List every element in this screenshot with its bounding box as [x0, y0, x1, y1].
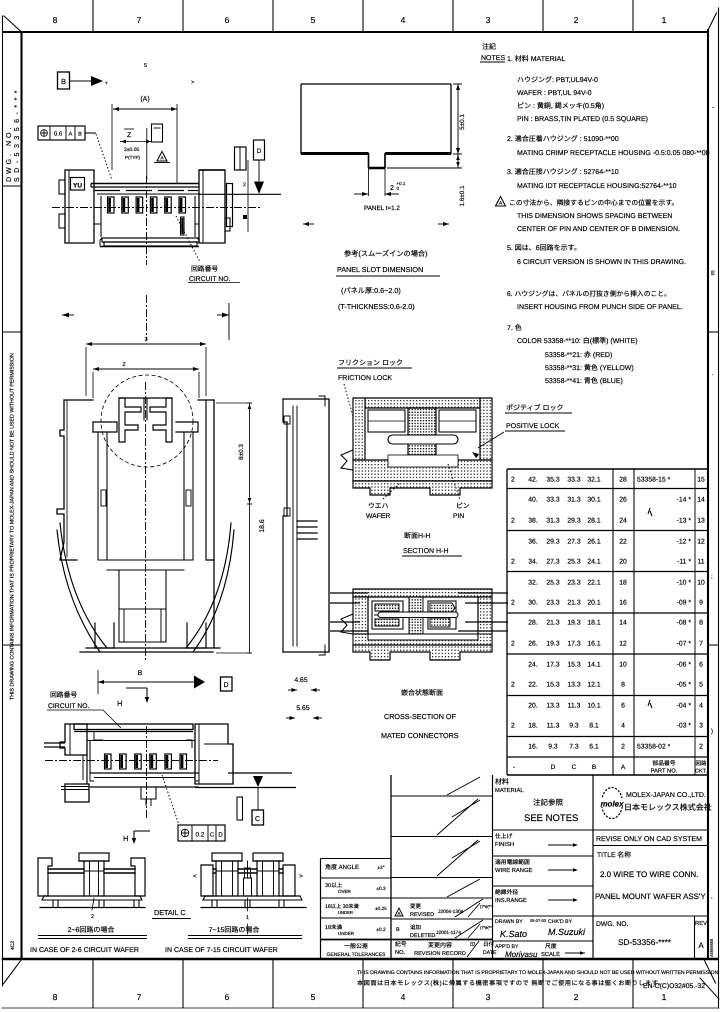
svg-text:2: 2: [511, 477, 515, 484]
svg-text:05-07-03: 05-07-03: [530, 918, 547, 923]
svg-text:25.3: 25.3: [546, 580, 559, 587]
svg-text:A: A: [69, 132, 73, 138]
svg-text:53358-**21: 赤 (RED): 53358-**21: 赤 (RED): [545, 351, 612, 359]
svg-text:31.3: 31.3: [546, 518, 559, 525]
svg-text:嵌合状態断面: 嵌合状態断面: [401, 689, 443, 697]
svg-text:2: 2: [511, 600, 515, 607]
svg-text:11.3: 11.3: [547, 723, 560, 730]
svg-text:32.1: 32.1: [587, 477, 600, 484]
svg-text:>: >: [299, 873, 303, 880]
svg-text:2: 2: [91, 914, 94, 920]
svg-text:1.6±0.1: 1.6±0.1: [459, 185, 466, 206]
svg-text:1. 材料 MATERIAL: 1. 材料 MATERIAL: [507, 55, 565, 63]
svg-text:8.1: 8.1: [589, 723, 599, 730]
svg-text:変更: 変更: [410, 903, 422, 910]
svg-text:33.3: 33.3: [567, 477, 580, 484]
svg-text:18.1: 18.1: [587, 620, 600, 627]
svg-text:K.Sato: K.Sato: [500, 929, 527, 939]
svg-text:POSITIVE LOCK: POSITIVE LOCK: [506, 423, 560, 430]
svg-text:5±0.1: 5±0.1: [459, 114, 466, 130]
svg-text:FRICTION LOCK: FRICTION LOCK: [338, 375, 392, 382]
svg-text:10: 10: [697, 580, 705, 587]
svg-text:TITLE 名称: TITLE 名称: [597, 851, 631, 859]
svg-text:8: 8: [53, 15, 58, 25]
svg-text:CIRCUIT NO.: CIRCUIT NO.: [189, 276, 231, 283]
svg-text:6 CIRCUIT VERSION IS SHOWN IN: 6 CIRCUIT VERSION IS SHOWN IN THIS DRAWI…: [517, 259, 686, 266]
svg-text:±0.3: ±0.3: [376, 886, 386, 892]
svg-text:22: 22: [619, 539, 627, 546]
svg-text:molex: molex: [600, 800, 624, 809]
svg-text:7: 7: [137, 992, 142, 1002]
svg-text:尺度: 尺度: [545, 943, 557, 950]
svg-text:15.3: 15.3: [546, 682, 559, 689]
svg-text:日付: 日付: [483, 941, 495, 948]
svg-text:34.: 34.: [528, 559, 538, 566]
svg-text:8: 8: [621, 682, 625, 689]
svg-text:6: 6: [699, 662, 703, 669]
svg-text:21.3: 21.3: [546, 620, 559, 627]
svg-text:A5555559: A5555559: [709, 938, 714, 957]
svg-text:NO.: NO.: [395, 949, 406, 956]
svg-text:2: 2: [574, 15, 579, 25]
svg-text:16.1: 16.1: [587, 641, 600, 648]
svg-text:断面H-H: 断面H-H: [404, 532, 430, 540]
svg-text:8: 8: [53, 992, 58, 1002]
svg-text:DWG. NO.: DWG. NO.: [596, 921, 629, 928]
svg-text:36.: 36.: [528, 539, 538, 546]
svg-text:4C2: 4C2: [10, 941, 16, 950]
svg-text:4: 4: [401, 992, 406, 1002]
svg-text:3: 3: [486, 15, 491, 25]
svg-text:42.: 42.: [528, 477, 538, 484]
svg-text:16: 16: [619, 600, 627, 607]
svg-text:20.: 20.: [528, 703, 538, 710]
svg-text:注記参照: 注記参照: [533, 798, 563, 807]
svg-text:1: 1: [662, 15, 667, 25]
svg-text:DETAIL C: DETAIL C: [154, 908, 186, 917]
svg-text:14.1: 14.1: [587, 662, 600, 669]
svg-text:DWG. NO.: DWG. NO.: [6, 125, 13, 182]
svg-text:WAFER : PBT,UL 94V-0: WAFER : PBT,UL 94V-0: [517, 90, 592, 97]
svg-text:CIRCUIT NO.: CIRCUIT NO.: [48, 703, 90, 710]
svg-text:A: A: [698, 941, 704, 950]
svg-text:10: 10: [619, 662, 627, 669]
svg-text:2: 2: [390, 185, 394, 192]
svg-text:2: 2: [511, 518, 515, 525]
svg-text:回路番号: 回路番号: [191, 265, 218, 273]
svg-text:6.1: 6.1: [589, 744, 599, 751]
svg-text:H: H: [123, 834, 128, 843]
svg-text:2~6回路の場合: 2~6回路の場合: [68, 926, 115, 934]
svg-text:REVISED: REVISED: [410, 912, 434, 918]
svg-text:7: 7: [137, 15, 142, 25]
svg-text:絶縁外径: 絶縁外径: [495, 889, 518, 896]
svg-text:3. 適合圧接ハウジング : 52764-**10: 3. 適合圧接ハウジング : 52764-**10: [507, 168, 619, 176]
svg-text:19.3: 19.3: [546, 641, 559, 648]
svg-text:±3°: ±3°: [377, 865, 384, 871]
svg-text:PIN : BRASS,TIN PLATED (0.5 SQ: PIN : BRASS,TIN PLATED (0.5 SQUARE): [517, 115, 648, 123]
svg-text:変更内容: 変更内容: [428, 941, 452, 949]
svg-text:-06 *: -06 *: [677, 662, 692, 669]
svg-text:CHK'D BY: CHK'D BY: [548, 919, 573, 925]
svg-text:GENERAL TOLERANCES: GENERAL TOLERANCES: [327, 952, 386, 958]
svg-text:CENTER OF PIN AND CENTER OF B: CENTER OF PIN AND CENTER OF B DIMENSION.: [517, 226, 680, 233]
svg-text:C: C: [255, 816, 260, 823]
svg-text:UNDER: UNDER: [338, 931, 355, 936]
svg-text:REVISE ONLY ON CAD SYSTEM: REVISE ONLY ON CAD SYSTEM: [596, 836, 702, 843]
svg-text:D: D: [257, 148, 262, 155]
svg-text:13: 13: [697, 518, 705, 525]
svg-text:24.: 24.: [528, 662, 538, 669]
svg-text:OVER: OVER: [338, 889, 352, 894]
svg-text:11: 11: [697, 559, 704, 566]
svg-text:D: D: [551, 764, 556, 771]
svg-text:): ): [711, 728, 713, 735]
svg-text:30.: 30.: [528, 600, 538, 607]
svg-text:PANEL t=1.2: PANEL t=1.2: [364, 205, 400, 212]
svg-text:IN CASE OF 7-15 CIRCUIT WAFER: IN CASE OF 7-15 CIRCUIT WAFER: [165, 947, 278, 954]
svg-text:E: E: [711, 270, 715, 277]
svg-text:D: D: [218, 832, 223, 839]
svg-text:2. 適合圧着ハウジング : 51090-**00: 2. 適合圧着ハウジング : 51090-**00: [507, 135, 619, 143]
svg-text:6. ハウジングは、パネルの打抜き側から挿入のこと。: 6. ハウジングは、パネルの打抜き側から挿入のこと。: [507, 290, 671, 298]
svg-text:18.: 18.: [528, 723, 538, 730]
svg-text:28.: 28.: [528, 620, 538, 627]
svg-text:26.1: 26.1: [587, 539, 600, 546]
svg-text:29.3: 29.3: [567, 518, 580, 525]
svg-text:-12 *: -12 *: [677, 539, 692, 546]
svg-text:±0.25: ±0.25: [375, 906, 387, 911]
svg-text:31.3: 31.3: [567, 497, 580, 504]
svg-text:5: 5: [144, 63, 147, 69]
svg-text:38.: 38.: [528, 518, 538, 525]
svg-text:MATING IDT RECEPTACLE HOUSING:: MATING IDT RECEPTACLE HOUSING:52764-**10: [517, 183, 677, 190]
svg-text:22.: 22.: [528, 682, 538, 689]
svg-text:53358-**41: 青色 (BLUE): 53358-**41: 青色 (BLUE): [545, 377, 623, 385]
svg-text:-: -: [513, 764, 515, 771]
svg-text:-04 *: -04 *: [677, 703, 692, 710]
svg-text:YU: YU: [73, 183, 82, 190]
svg-text:2: 2: [621, 744, 625, 751]
svg-text:-09 *: -09 *: [677, 600, 692, 607]
svg-text:5. 図は、6回路を示す。: 5. 図は、6回路を示す。: [507, 244, 581, 252]
svg-text:UNDER: UNDER: [338, 910, 353, 915]
svg-text:-05 *: -05 *: [677, 682, 692, 689]
svg-text:THIS DRAWING CONTAINS INFORMAT: THIS DRAWING CONTAINS INFORMATION THAT I…: [357, 970, 719, 976]
svg-text:28: 28: [619, 477, 627, 484]
svg-text:53358-15 *: 53358-15 *: [637, 477, 671, 484]
svg-text:12: 12: [619, 641, 627, 648]
svg-text:17.3: 17.3: [546, 662, 559, 669]
svg-text:14: 14: [619, 620, 627, 627]
svg-text:24.1: 24.1: [587, 559, 600, 566]
svg-text:MATED CONNECTORS: MATED CONNECTORS: [381, 731, 459, 740]
svg-text:(T-THICKNESS:0.6-2.0): (T-THICKNESS:0.6-2.0): [338, 302, 415, 311]
svg-text:23.3: 23.3: [546, 600, 559, 607]
svg-text:4.65: 4.65: [294, 677, 307, 684]
svg-text:7~15回路の場合: 7~15回路の場合: [209, 926, 260, 934]
svg-text:25.3: 25.3: [567, 559, 580, 566]
svg-text:2.0 WIRE TO WIRE CONN.: 2.0 WIRE TO WIRE CONN.: [600, 870, 698, 879]
svg-text:18未満: 18未満: [325, 924, 343, 931]
svg-text:53358-**31: 黄色 (YELLOW): 53358-**31: 黄色 (YELLOW): [545, 364, 634, 372]
svg-text:仕上げ: 仕上げ: [495, 833, 513, 840]
svg-text:SEE NOTES: SEE NOTES: [524, 813, 578, 824]
svg-text:WIRE RANGE: WIRE RANGE: [495, 867, 532, 874]
svg-text:-03 *: -03 *: [677, 723, 692, 730]
svg-text:(A): (A): [140, 95, 149, 103]
svg-text:C: C: [572, 764, 577, 771]
svg-text:B: B: [61, 77, 66, 86]
svg-text:2: 2: [511, 559, 515, 566]
svg-text:FINISH: FINISH: [495, 841, 514, 848]
svg-text:WAFER: WAFER: [366, 513, 390, 520]
svg-text:ピン : 黄銅, 錫メッキ(0.5角): ピン : 黄銅, 錫メッキ(0.5角): [517, 102, 604, 110]
svg-text:ウエハ: ウエハ: [368, 502, 389, 510]
svg-text:PART NO.: PART NO.: [651, 768, 678, 775]
svg-text:40.: 40.: [528, 497, 538, 504]
svg-text:0.2: 0.2: [196, 832, 205, 839]
svg-text:6: 6: [225, 992, 230, 1002]
svg-text:3: 3: [486, 992, 491, 1002]
svg-text:20.1: 20.1: [587, 600, 600, 607]
svg-text:33.3: 33.3: [546, 497, 559, 504]
svg-text:(パネル厚:0.6~2.0): (パネル厚:0.6~2.0): [341, 286, 401, 295]
svg-text:A: A: [397, 911, 400, 916]
svg-text:-13 *: -13 *: [677, 518, 692, 525]
svg-text:0.6: 0.6: [54, 131, 63, 138]
svg-text:17.3: 17.3: [567, 641, 580, 648]
svg-text:13.3: 13.3: [546, 703, 559, 710]
svg-text:D: D: [223, 682, 228, 689]
svg-text:REVISION RECORD: REVISION RECORD: [414, 951, 466, 957]
svg-text:日本モレックス株式会社: 日本モレックス株式会社: [624, 803, 712, 812]
svg-text:SCALE: SCALE: [541, 951, 560, 958]
svg-text:9.3: 9.3: [569, 723, 579, 730]
svg-text:2±0.05: 2±0.05: [124, 147, 139, 153]
svg-text:7.3: 7.3: [569, 744, 579, 751]
svg-text:1: 1: [662, 992, 667, 1002]
svg-text:COLOR 53358-**10: 白(標準) (WHITE: COLOR 53358-**10: 白(標準) (WHITE): [517, 337, 638, 345]
svg-text:26: 26: [619, 497, 627, 504]
svg-text:±0.2: ±0.2: [376, 927, 386, 933]
svg-text:12: 12: [697, 539, 705, 546]
svg-text:B: B: [396, 927, 400, 933]
svg-text:DATE: DATE: [483, 950, 497, 956]
svg-text:2: 2: [574, 992, 579, 1002]
svg-text:P(TYP): P(TYP): [125, 155, 141, 160]
svg-text:M.Suzuki: M.Suzuki: [548, 927, 586, 937]
svg-text:4: 4: [699, 703, 703, 710]
svg-text:5.65: 5.65: [296, 705, 309, 712]
svg-text:2: 2: [699, 744, 703, 751]
svg-text:CROSS-SECTION OF: CROSS-SECTION OF: [384, 712, 456, 721]
svg-text:DELETED: DELETED: [410, 933, 435, 939]
svg-text:27.3: 27.3: [546, 559, 559, 566]
svg-text:部品番号: 部品番号: [652, 760, 675, 767]
svg-text:J2001-1174: J2001-1174: [436, 930, 461, 936]
svg-text:5: 5: [699, 682, 703, 689]
svg-text:4: 4: [621, 723, 625, 730]
svg-text:-07 *: -07 *: [677, 641, 692, 648]
svg-text:2: 2: [511, 682, 515, 689]
svg-text:30以上: 30以上: [325, 882, 343, 889]
svg-text:SD-53356-****: SD-53356-****: [618, 937, 672, 947]
svg-text:6: 6: [225, 15, 230, 25]
svg-text:16.: 16.: [528, 744, 538, 751]
svg-text:材料: 材料: [495, 778, 509, 786]
svg-text:SD-53356-***: SD-53356-***: [14, 86, 21, 182]
svg-text:一般公差: 一般公差: [344, 942, 368, 950]
svg-text:18: 18: [619, 580, 627, 587]
svg-text:-14 *: -14 *: [677, 497, 692, 504]
svg-text:B: B: [592, 764, 596, 771]
svg-text:追加: 追加: [410, 924, 422, 931]
svg-text:回路: 回路: [695, 760, 707, 767]
svg-text:REV: REV: [695, 921, 707, 927]
svg-text:35.3: 35.3: [546, 477, 559, 484]
svg-text:19.3: 19.3: [567, 620, 580, 627]
svg-text:27.3: 27.3: [567, 539, 580, 546]
svg-text:Z: Z: [127, 132, 132, 139]
svg-text:-: -: [712, 105, 714, 111]
svg-text:H: H: [117, 699, 122, 708]
svg-text:INSERT HOUSING FROM PUNCH SIDE: INSERT HOUSING FROM PUNCH SIDE OF PANEL.: [517, 304, 683, 311]
svg-text:26.: 26.: [528, 641, 538, 648]
svg-text:28.1: 28.1: [587, 518, 600, 525]
svg-text:フリクション ロック: フリクション ロック: [338, 359, 403, 367]
svg-text:B: B: [78, 132, 82, 138]
svg-text:本図面は日本モレックス(株)に帰属する機密事項ですので 無断: 本図面は日本モレックス(株)に帰属する機密事項ですので 無断でご使用になる事は堅…: [357, 979, 664, 987]
svg-text:THIS DRAWING CONTAINS INFORMAT: THIS DRAWING CONTAINS INFORMATION THAT I…: [10, 353, 16, 700]
svg-text:<: <: [193, 873, 197, 880]
svg-text:13.3: 13.3: [567, 682, 580, 689]
svg-text:ハウジング: PBT,UL94V-0: ハウジング: PBT,UL94V-0: [517, 76, 598, 84]
svg-text:Moriyasu: Moriyasu: [505, 950, 538, 959]
svg-text:9: 9: [699, 600, 703, 607]
svg-text:-11 *: -11 *: [677, 559, 691, 566]
svg-text:-10 *: -10 *: [677, 580, 692, 587]
svg-text:記号: 記号: [395, 941, 407, 948]
svg-text:53358-02 *: 53358-02 *: [637, 744, 671, 751]
svg-text:MATING CRIMP RECEPTACLE HOUSIN: MATING CRIMP RECEPTACLE HOUSING -0.5:0.0…: [517, 150, 710, 157]
svg-text:INS.RANGE: INS.RANGE: [495, 897, 527, 904]
svg-text:1: 1: [246, 915, 249, 921]
svg-text:>: >: [191, 80, 195, 86]
svg-text:7. 色: 7. 色: [507, 324, 522, 332]
svg-text:B: B: [138, 670, 143, 677]
svg-text:A: A: [621, 764, 626, 771]
svg-text:THIS DIMENSION SHOWS SPACING B: THIS DIMENSION SHOWS SPACING BETWEEN: [517, 213, 672, 220]
svg-text:18.6: 18.6: [259, 519, 266, 532]
svg-text:5: 5: [311, 15, 316, 25]
svg-text:15: 15: [697, 477, 705, 484]
svg-text:この寸法から、隣接するピンの中心までの位置を示す。: この寸法から、隣接するピンの中心までの位置を示す。: [509, 199, 678, 207]
svg-text:4: 4: [401, 15, 406, 25]
svg-text:C: C: [210, 832, 215, 839]
svg-text:DRAWN BY: DRAWN BY: [495, 919, 523, 925]
svg-text:CKT.: CKT.: [695, 769, 707, 775]
svg-text:(7*#(**: (7*#(**: [480, 904, 492, 909]
svg-text:3: 3: [699, 723, 703, 730]
svg-text:+: +: [105, 81, 108, 87]
svg-text:11.3: 11.3: [568, 703, 581, 710]
svg-text:MOLEX-JAPAN CO.,LTD.: MOLEX-JAPAN CO.,LTD.: [626, 792, 706, 799]
svg-text:23.3: 23.3: [567, 580, 580, 587]
svg-text:PANEL MOUNT WAFER ASS'Y: PANEL MOUNT WAFER ASS'Y: [595, 892, 706, 901]
svg-text:注記: 注記: [482, 43, 496, 51]
svg-text:-08 *: -08 *: [677, 620, 692, 627]
svg-text:適用電線範囲: 適用電線範囲: [495, 859, 530, 866]
svg-text:角度 ANGLE: 角度 ANGLE: [325, 863, 359, 871]
svg-text:7: 7: [699, 641, 703, 648]
svg-text:PANEL SLOT DIMENSION: PANEL SLOT DIMENSION: [337, 265, 423, 274]
svg-text:SECTION H-H: SECTION H-H: [403, 548, 449, 555]
svg-text:14: 14: [697, 497, 705, 504]
svg-text:ピン: ピン: [456, 502, 470, 510]
svg-text:15.3: 15.3: [567, 662, 580, 669]
svg-text:2: 2: [243, 182, 246, 188]
svg-text:NOTES: NOTES: [481, 55, 505, 62]
svg-text:10.1: 10.1: [587, 703, 600, 710]
svg-text:MATERIAL: MATERIAL: [495, 788, 524, 794]
svg-text:18以上 30未満: 18以上 30未満: [325, 903, 359, 910]
svg-text:9.3: 9.3: [548, 744, 558, 751]
svg-text:参考(スムーズインの場合): 参考(スムーズインの場合): [344, 249, 428, 258]
svg-text:12.1: 12.1: [587, 682, 600, 689]
svg-text:2: 2: [511, 641, 515, 648]
svg-text:PIN: PIN: [453, 513, 464, 520]
svg-text:8±0.3: 8±0.3: [238, 444, 245, 460]
svg-text:21.3: 21.3: [567, 600, 580, 607]
svg-text:IN CASE OF 2-6 CIRCUIT WAFER: IN CASE OF 2-6 CIRCUIT WAFER: [30, 947, 139, 954]
svg-text:29.3: 29.3: [546, 539, 559, 546]
svg-text:5: 5: [311, 992, 316, 1002]
svg-text:20: 20: [619, 559, 627, 566]
svg-text:24: 24: [619, 518, 627, 525]
svg-text:ポジティブ ロック: ポジティブ ロック: [506, 404, 564, 412]
svg-text:回路番号: 回路番号: [50, 691, 77, 699]
svg-text:2: 2: [511, 723, 515, 730]
svg-text:(7*#(**: (7*#(**: [480, 925, 492, 930]
svg-text:32.: 32.: [528, 580, 538, 587]
svg-text:J2004-1304: J2004-1304: [438, 909, 464, 915]
svg-text:30.1: 30.1: [587, 497, 600, 504]
svg-text:6: 6: [621, 703, 625, 710]
svg-text:8: 8: [699, 620, 703, 627]
svg-text:22.1: 22.1: [587, 580, 600, 587]
